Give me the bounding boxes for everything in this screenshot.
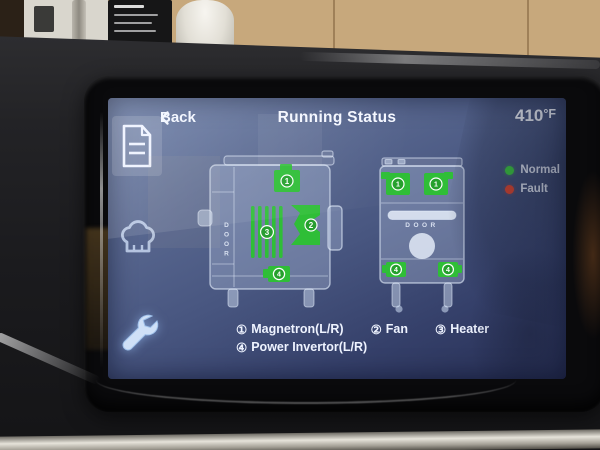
svg-text:1: 1 <box>434 182 438 189</box>
touchscreen: Back Running Status 410 °F <box>108 98 566 379</box>
footnote-line-2: ④ Power Invertor(L/R) <box>236 340 489 355</box>
temperature-unit: °F <box>543 107 556 121</box>
front-view-door-label: DOOR <box>392 222 452 229</box>
svg-text:3: 3 <box>265 228 270 237</box>
finger-reflection <box>470 248 566 379</box>
footnote-line-1: ① Magnetron(L/R) ② Fan ③ Heater <box>236 322 489 337</box>
cabinet-fold-line <box>527 0 529 60</box>
svg-text:4: 4 <box>394 267 398 274</box>
wrench-icon <box>115 310 159 356</box>
component-footnotes: ① Magnetron(L/R) ② Fan ③ Heater ④ Power … <box>236 322 489 358</box>
page-title: Running Status <box>108 109 566 127</box>
normal-status-dot <box>505 166 514 175</box>
svg-text:4: 4 <box>446 267 450 274</box>
footnote-magnetron: ① Magnetron(L/R) <box>236 322 344 337</box>
side-view-door-label: DOOR <box>218 222 230 272</box>
chef-hat-icon <box>119 220 157 260</box>
temperature-readout: 410 °F <box>515 106 556 126</box>
fault-status-dot <box>505 185 514 194</box>
svg-text:4: 4 <box>277 272 281 279</box>
appliance-display-panel <box>34 6 54 32</box>
status-legend: Normal Fault <box>505 164 560 195</box>
footnote-heater: ③ Heater <box>435 322 489 337</box>
bezel-rim-highlight <box>100 112 103 368</box>
footnote-fan: ② Fan <box>371 322 408 337</box>
document-icon <box>120 124 154 168</box>
svg-text:2: 2 <box>309 221 314 230</box>
photo-of-oven-touchscreen: Back Running Status 410 °F <box>0 0 600 450</box>
oven-front-view-diagram: 1 1 4 4 <box>372 156 472 316</box>
side-reflection <box>572 170 600 340</box>
legend-fault: Fault <box>505 183 560 195</box>
temperature-value: 410 <box>515 106 543 126</box>
legend-normal: Normal <box>505 164 560 176</box>
footnote-power-invertor: ④ Power Invertor(L/R) <box>236 340 367 355</box>
svg-text:1: 1 <box>285 177 290 186</box>
svg-text:1: 1 <box>396 182 400 189</box>
